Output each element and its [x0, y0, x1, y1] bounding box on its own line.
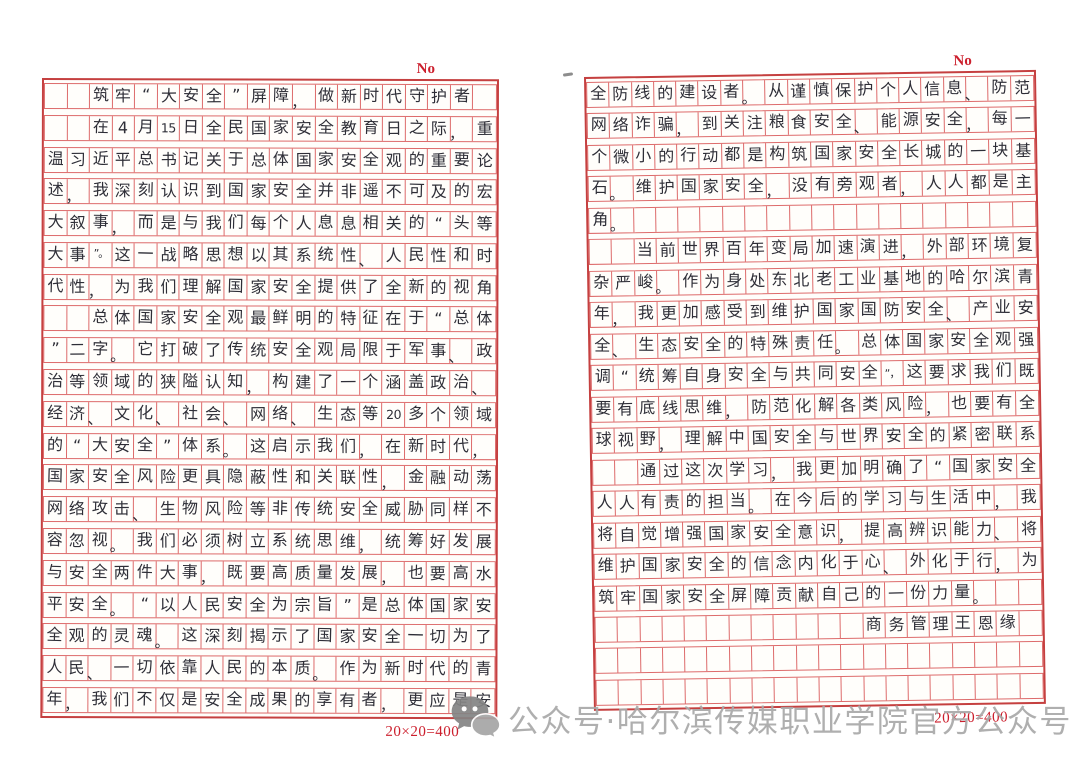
grid-cell: 我	[135, 275, 158, 299]
handwritten-character: 们	[228, 214, 244, 230]
handwritten-character: 屏	[251, 89, 267, 105]
grid-cell: 魂	[134, 625, 157, 649]
grid-cell: 这	[682, 459, 705, 483]
grid-cell: 二	[67, 338, 90, 362]
handwritten-character: 相	[363, 215, 379, 231]
handwritten-character: 国	[251, 120, 267, 136]
grid-cell: 块	[989, 139, 1012, 163]
grid-cell: 安	[837, 362, 860, 386]
grid-cell: ，	[472, 435, 495, 459]
grid-cell	[1019, 579, 1042, 603]
grid-row	[595, 673, 1043, 706]
handwritten-character: 这	[685, 462, 701, 478]
handwritten-character: 。	[835, 341, 850, 356]
grid-cell: 认	[202, 370, 225, 394]
handwritten-character: ，	[245, 381, 260, 396]
grid-cell: 全	[587, 83, 610, 107]
grid-cell: 维	[704, 395, 727, 419]
grid-cell: 态	[658, 333, 681, 357]
grid-cell: 设	[699, 81, 722, 105]
handwritten-character: 构	[769, 146, 785, 162]
grid-cell: 内	[795, 551, 818, 575]
grid-cell: 基	[1012, 139, 1035, 163]
grid-cell: 会	[202, 402, 225, 426]
grid-cell: 政	[428, 371, 451, 395]
handwritten-character: 筑	[93, 87, 109, 103]
grid-cell: 界	[860, 425, 883, 449]
grid-cell: ，	[360, 434, 383, 458]
handwritten-character: ，	[675, 123, 690, 138]
handwritten-character: 代	[430, 661, 446, 677]
handwritten-character: 筑	[598, 589, 614, 605]
grid-cell: 观	[856, 173, 879, 197]
handwritten-character: 王	[955, 615, 971, 631]
handwritten-character: 视	[453, 279, 469, 295]
grid-cell: 统	[315, 244, 338, 268]
handwritten-character: 民	[408, 247, 424, 263]
handwritten-character: 认	[160, 184, 176, 200]
handwritten-character: 不	[386, 184, 402, 200]
handwritten-character: 人	[46, 659, 62, 675]
handwritten-character: 安	[341, 152, 357, 168]
grid-cell: 身	[724, 269, 747, 293]
grid-cell	[678, 207, 701, 231]
handwritten-character: 家	[836, 146, 852, 162]
handwritten-character: 安	[114, 438, 130, 454]
grid-cell	[819, 645, 842, 669]
handwritten-character: 们	[160, 279, 176, 295]
grid-cell: 。	[111, 529, 134, 553]
handwritten-character: 同	[817, 365, 833, 381]
handwritten-character: 加	[682, 305, 698, 321]
handwritten-character: 。	[312, 667, 327, 682]
grid-cell: 的	[945, 140, 968, 164]
handwritten-character: 构	[272, 373, 288, 389]
grid-cell: 动	[450, 466, 473, 490]
grid-cell	[797, 646, 820, 670]
grid-cell: 强	[1015, 328, 1038, 352]
handwritten-character: 外	[909, 553, 925, 569]
grid-cell: 构	[270, 371, 293, 395]
handwritten-character: 攻	[92, 500, 108, 516]
handwritten-character: 日	[386, 121, 402, 137]
page-number-label: No	[417, 61, 435, 78]
grid-row: 调“统筹自身安全与共同安全”，这要求我们既	[591, 358, 1039, 391]
grid-cell	[686, 679, 709, 703]
handwritten-character: 国	[228, 183, 244, 199]
grid-cell	[1020, 674, 1043, 698]
grid-cell: 济	[67, 402, 90, 426]
handwritten-character: 4	[118, 120, 128, 136]
grid-cell: 等	[360, 403, 383, 427]
grid-cell: 我	[971, 360, 994, 384]
grid-cell	[998, 674, 1021, 698]
grid-cell: 家	[972, 454, 995, 478]
grid-cell: 近	[90, 148, 113, 172]
handwritten-character: 必	[182, 532, 198, 548]
handwritten-character: 事	[92, 214, 108, 230]
grid-cell: 忽	[66, 529, 89, 553]
handwritten-character: 个	[880, 82, 896, 98]
handwritten-character: 政	[476, 343, 492, 359]
grid-row: 全、生态安全的特殊责任。总体国家安全观强	[590, 327, 1038, 360]
handwritten-character: 学	[864, 491, 880, 507]
grid-cell: 防	[609, 82, 632, 106]
handwritten-character: 安	[728, 367, 744, 383]
grid-cell: 政	[473, 339, 496, 363]
handwritten-character: 二	[70, 342, 86, 358]
grid-cell: 了	[472, 625, 495, 649]
grid-cell: 风	[134, 466, 157, 490]
grid-cell	[641, 648, 664, 672]
grid-cell: 总	[859, 330, 882, 354]
grid-cell: 世	[679, 239, 702, 263]
handwritten-character: 是	[160, 215, 176, 231]
grid-cell: 加	[680, 301, 703, 325]
handwritten-character: 思	[684, 399, 700, 415]
grid-cell	[909, 676, 932, 700]
handwritten-character: 次	[707, 462, 723, 478]
grid-cell: 联	[994, 422, 1017, 446]
grid-cell: 隐	[224, 466, 247, 490]
handwritten-character: 东	[771, 272, 787, 288]
handwritten-character: 作	[339, 661, 355, 677]
handwritten-character: 了	[317, 374, 333, 390]
grid-cell	[752, 647, 775, 671]
grid-cell: 是	[179, 688, 202, 712]
handwritten-character: 务	[888, 617, 904, 633]
handwritten-character: 、	[612, 345, 627, 360]
grid-cell: 容	[44, 529, 67, 553]
grid-cell: 月	[135, 116, 158, 140]
handwritten-character: 。	[155, 635, 170, 650]
grid-cell: 性	[360, 466, 383, 490]
grid-cell: 安	[201, 688, 224, 712]
handwritten-character: 的	[408, 215, 424, 231]
handwritten-character: 障	[273, 87, 289, 103]
handwritten-character: 识	[183, 183, 199, 199]
grid-cell: 活	[950, 486, 973, 510]
grid-cell: 思	[314, 530, 337, 554]
handwritten-character: 一	[114, 660, 130, 676]
grid-cell: 同	[427, 498, 450, 522]
handwritten-character: 都	[725, 147, 741, 163]
paper-spec-label: 20×20=400	[385, 724, 459, 741]
grid-cell: 人	[43, 656, 66, 680]
handwritten-character: 老	[816, 271, 832, 287]
handwritten-character: 领	[453, 406, 469, 422]
handwritten-character: 、	[964, 87, 979, 102]
grid-cell: 增	[661, 522, 684, 546]
handwritten-character: 国	[642, 557, 658, 573]
handwritten-character: 启	[272, 437, 288, 453]
handwritten-character: 忽	[69, 533, 85, 549]
handwritten-character: 风	[885, 397, 901, 413]
grid-cell: 中	[973, 486, 996, 510]
handwritten-character: 做	[318, 88, 334, 104]
grid-cell: 荡	[472, 467, 495, 491]
grid-cell: 管	[908, 613, 931, 637]
handwritten-character: 复	[1016, 237, 1032, 253]
handwritten-character: 识	[931, 522, 947, 538]
handwritten-character: 意	[797, 524, 813, 540]
handwritten-character: 月	[138, 119, 154, 135]
grid-cell: ，	[967, 108, 990, 132]
handwritten-character: 体	[273, 151, 289, 167]
grid-cell: 立	[247, 529, 270, 553]
grid-cell	[924, 203, 947, 227]
handwritten-character: 北	[793, 272, 809, 288]
grid-cell: 性	[428, 244, 451, 268]
handwritten-character: 险	[159, 470, 175, 486]
grid-cell: 体	[473, 308, 496, 332]
grid-cell: 学	[861, 487, 884, 511]
handwritten-character: 提	[864, 522, 880, 538]
handwritten-character: 络	[272, 405, 288, 421]
grid-cell	[685, 616, 708, 640]
handwritten-character: 我	[205, 216, 221, 232]
handwritten-character: 领	[92, 373, 108, 389]
handwritten-character: 思	[317, 532, 333, 548]
grid-cell: 宏	[473, 180, 496, 204]
handwritten-character: 和	[295, 470, 311, 486]
grid-cell: 全	[112, 466, 135, 490]
handwritten-character: 关	[205, 152, 221, 168]
handwritten-character: 贡	[776, 586, 792, 602]
handwritten-character: 统	[385, 534, 401, 550]
grid-cell: 家	[270, 116, 293, 140]
grid-cell: 有	[638, 491, 661, 515]
handwritten-character: 安	[69, 597, 85, 613]
handwritten-character: 体	[407, 596, 423, 612]
grid-cell: 的	[405, 212, 428, 236]
grid-cell: 识	[928, 518, 951, 542]
handwritten-character: 求	[951, 363, 967, 379]
handwritten-character: 教	[341, 121, 357, 137]
handwritten-character: 国	[642, 588, 658, 604]
grid-cell: 络	[66, 497, 89, 521]
grid-cell: 安	[66, 561, 89, 585]
grid-cell: ”	[157, 434, 180, 458]
handwritten-character: 平	[46, 595, 62, 611]
grid-cell: 障	[751, 584, 774, 608]
handwritten-character: 样	[452, 501, 468, 517]
grid-row: 大事”。这一战略思想以其系统性、人民性和时	[44, 242, 497, 269]
handwritten-character: 总	[250, 152, 266, 168]
handwritten-character: 滨	[994, 268, 1010, 284]
grid-cell: 总	[248, 148, 271, 172]
handwritten-character: 国	[681, 179, 697, 195]
handwritten-character: 建	[295, 375, 311, 391]
grid-cell: 加	[813, 236, 836, 260]
handwritten-character: 蔽	[250, 470, 266, 486]
grid-cell: 全	[292, 339, 315, 363]
handwritten-character: ”。	[93, 248, 108, 259]
grid-row: 筑牢国家安全屏障贡献自己的一份力量。	[594, 578, 1042, 611]
grid-row: 总体国家安全观最鲜明的特征在于“总体	[43, 305, 496, 332]
grid-cell: 解	[202, 275, 225, 299]
handwritten-character: 责	[794, 335, 810, 351]
handwritten-character: 平	[115, 152, 131, 168]
handwritten-character: 与	[818, 428, 834, 444]
grid-cell: 年	[43, 688, 66, 712]
grid-cell: 社	[179, 402, 202, 426]
grid-cell: ，	[293, 85, 316, 109]
grid-cell: 息	[338, 212, 361, 236]
grid-cell: 全	[591, 334, 614, 358]
handwritten-character: ，	[765, 185, 780, 200]
handwritten-character: 国	[708, 525, 724, 541]
handwritten-character: 关	[317, 469, 333, 485]
grid-cell: 全	[224, 688, 247, 712]
grid-cell: 非	[269, 498, 292, 522]
handwritten-character: 牢	[115, 88, 131, 104]
handwritten-character: 国	[861, 302, 877, 318]
handwritten-character: 观	[317, 342, 333, 358]
grid-cell: 青	[472, 657, 495, 681]
handwritten-character: 安	[858, 144, 874, 160]
grid-cell: 解	[704, 427, 727, 451]
handwritten-character: 增	[664, 526, 680, 542]
grid-cell: 治	[450, 371, 473, 395]
grid-cell: 在	[382, 434, 405, 458]
grid-cell: 紧	[949, 423, 972, 447]
grid-cell: 全	[748, 363, 771, 387]
grid-cell: 到	[699, 112, 722, 136]
handwritten-character: 化	[137, 405, 153, 421]
grid-cell: ，	[66, 688, 89, 712]
grid-cell: 日	[383, 117, 406, 141]
grid-cell: 国	[811, 142, 834, 166]
handwritten-character: 全	[205, 311, 221, 327]
grid-cell: ，	[247, 371, 270, 395]
handwritten-character: 有	[641, 494, 657, 510]
handwritten-character: 没	[792, 178, 808, 194]
handwritten-character: 守	[408, 88, 424, 104]
grid-cell: 险	[224, 498, 247, 522]
handwritten-character: 识	[820, 523, 836, 539]
handwritten-character: 日	[183, 119, 199, 135]
grid-cell: 老	[813, 268, 836, 292]
handwritten-character: 全	[318, 119, 334, 135]
grid-cell: 遥	[360, 180, 383, 204]
grid-cell: ”，	[881, 361, 904, 385]
handwritten-character: 源	[903, 112, 919, 128]
grid-cell	[656, 207, 679, 231]
grid-row: 杂严峻。作为身处东北老工业基地的哈尔滨青	[589, 264, 1037, 297]
handwritten-character: 年	[46, 691, 62, 707]
handwritten-character: 为	[115, 279, 131, 295]
grid-cell: 领	[450, 403, 473, 427]
handwritten-character: 自	[821, 586, 837, 602]
handwritten-character: 质	[294, 661, 310, 677]
grid-cell: 温	[45, 148, 68, 172]
grid-cell: 日	[180, 116, 203, 140]
grid-cell: 险	[904, 392, 927, 416]
grid-cell: 及	[428, 180, 451, 204]
handwritten-character: 全	[594, 337, 610, 353]
handwritten-character: 。	[223, 445, 238, 460]
handwritten-character: 境	[994, 237, 1010, 253]
handwritten-character: 生	[317, 405, 333, 421]
grid-cell: 示	[269, 625, 292, 649]
grid-cell: 的	[449, 657, 472, 681]
grid-cell: 球	[593, 429, 616, 453]
grid-cell: 经	[44, 402, 67, 426]
grid-cell: 滨	[991, 265, 1014, 289]
grid-cell: 以	[247, 243, 270, 267]
grid-cell: 国	[950, 455, 973, 479]
handwritten-character: 了	[908, 458, 924, 474]
grid-cell: 当	[634, 239, 657, 263]
handwritten-character: 是	[993, 174, 1009, 190]
grid-cell: 好	[427, 530, 450, 554]
handwritten-character: 底	[639, 400, 655, 416]
handwritten-character: 安	[183, 87, 199, 103]
handwritten-character: 提	[318, 278, 334, 294]
handwritten-character: 商	[866, 616, 882, 632]
handwritten-character: 局	[340, 343, 356, 359]
grid-cell: 征	[360, 307, 383, 331]
handwritten-character: 险	[227, 500, 243, 516]
grid-cell: 国	[248, 116, 271, 140]
handwritten-character: 总	[92, 309, 108, 325]
handwritten-character: 的	[658, 148, 674, 164]
grid-cell: 述	[45, 179, 68, 203]
grid-cell: 骗	[654, 113, 677, 137]
grid-cell: 的	[925, 266, 948, 290]
grid-cell	[818, 614, 841, 638]
grid-cell: 人	[594, 492, 617, 516]
grid-row: ”二字。它打破了传统安全观局限于军事、政	[43, 337, 496, 364]
handwritten-character: ，	[200, 572, 215, 587]
grid-cell: 、	[134, 497, 157, 521]
grid-cell: 高	[450, 562, 473, 586]
grid-cell: 、	[360, 244, 383, 268]
grid-cell: 业	[992, 297, 1015, 321]
handwritten-character: 安	[273, 278, 289, 294]
grid-cell: 到	[747, 300, 770, 324]
handwritten-character: 感	[705, 305, 721, 321]
handwritten-character: 。	[610, 219, 625, 234]
grid-cell: 安	[856, 141, 879, 165]
handwritten-character: 、	[946, 308, 961, 323]
grid-cell: 民	[201, 593, 224, 617]
grid-cell	[593, 460, 616, 484]
handwritten-character: 个	[430, 407, 446, 423]
handwritten-character: 们	[159, 533, 175, 549]
grid-cell: 加	[838, 456, 861, 480]
handwritten-character: 于	[408, 310, 424, 326]
handwritten-character: 我	[1020, 489, 1036, 505]
handwritten-character: 全	[226, 691, 242, 707]
handwritten-character: ”	[51, 341, 60, 357]
grid-cell: 都	[722, 143, 745, 167]
grid-cell: 北	[791, 268, 814, 292]
handwritten-character: 系	[1019, 426, 1035, 442]
grid-cell	[595, 618, 618, 642]
handwritten-character: 系	[205, 438, 221, 454]
grid-cell: 安	[337, 498, 360, 522]
grid-cell	[968, 203, 991, 227]
grid-cell: 家	[248, 180, 271, 204]
grid-cell: ，	[726, 395, 749, 419]
grid-row: 全观的灵魂。这深刻揭示了国家安全一切为了	[43, 623, 496, 650]
grid-cell: 共	[792, 363, 815, 387]
handwritten-character: 全	[750, 367, 766, 383]
handwritten-character: 到	[749, 304, 765, 320]
grid-cell	[663, 648, 686, 672]
